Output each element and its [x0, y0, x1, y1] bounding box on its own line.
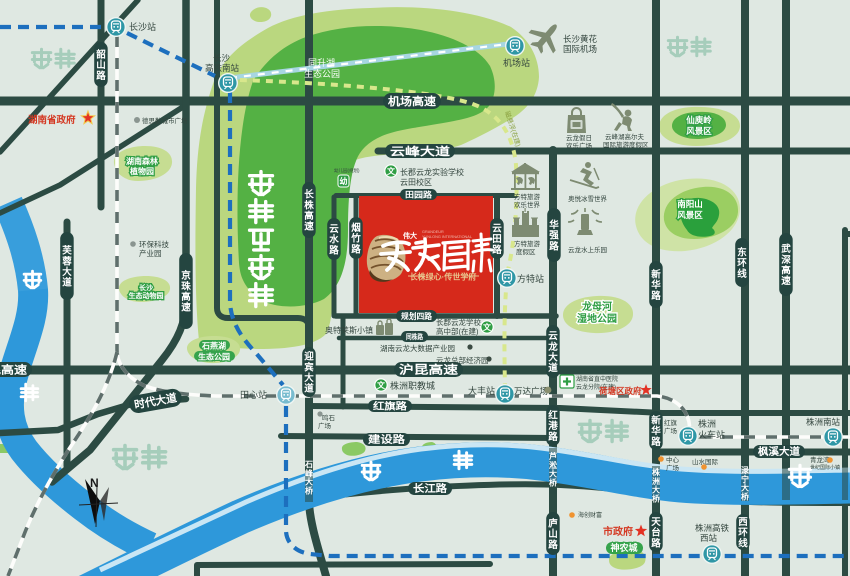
svg-text:迎: 迎	[304, 351, 314, 363]
svg-text:生态公园: 生态公园	[198, 352, 230, 362]
svg-text:生态公园: 生态公园	[304, 68, 340, 79]
svg-text:路: 路	[492, 244, 502, 256]
svg-text:高铁南站: 高铁南站	[205, 63, 240, 73]
svg-text:道: 道	[304, 383, 314, 395]
svg-text:枫溪大道: 枫溪大道	[758, 445, 800, 458]
svg-text:文: 文	[483, 322, 492, 332]
svg-text:路: 路	[651, 290, 661, 302]
svg-text:火车站: 火车站	[698, 429, 725, 440]
svg-text:路: 路	[548, 431, 558, 443]
svg-text:速: 速	[304, 221, 314, 233]
svg-text:建设路: 建设路	[367, 433, 406, 446]
svg-text:云峰湖高尔夫: 云峰湖高尔夫	[605, 132, 645, 141]
svg-text:高: 高	[304, 210, 314, 222]
svg-text:大: 大	[304, 372, 314, 384]
svg-text:大: 大	[741, 483, 749, 493]
svg-text:峰: 峰	[305, 468, 313, 478]
svg-text:珠: 珠	[181, 280, 191, 292]
svg-text:幼: 幼	[340, 176, 348, 186]
svg-text:长株绿心·传世学府: 长株绿心·传世学府	[410, 272, 477, 282]
svg-text:龙母河: 龙母河	[581, 300, 612, 313]
svg-text:广场: 广场	[664, 426, 678, 435]
svg-text:鸣石: 鸣石	[322, 413, 336, 422]
svg-text:YUNLONG INTERNATIONAL: YUNLONG INTERNATIONAL	[422, 235, 472, 239]
svg-text:生态动物园: 生态动物园	[129, 291, 164, 300]
svg-text:线: 线	[738, 537, 748, 549]
svg-text:路: 路	[351, 243, 361, 255]
svg-text:大: 大	[548, 352, 558, 364]
svg-text:台: 台	[651, 527, 661, 539]
svg-text:海创财富: 海创财富	[578, 511, 602, 519]
svg-text:文: 文	[377, 380, 386, 390]
svg-text:蓉: 蓉	[61, 255, 72, 267]
svg-text:风景区: 风景区	[686, 126, 712, 136]
svg-text:桥: 桥	[652, 493, 661, 503]
svg-text:云龙假日: 云龙假日	[566, 133, 592, 142]
svg-text:沪昆高速: 沪昆高速	[0, 363, 27, 377]
svg-text:湖南省政府: 湖南省政府	[28, 114, 76, 126]
svg-text:广场: 广场	[666, 463, 680, 472]
svg-text:方特站: 方特站	[517, 273, 544, 284]
svg-text:高中部(在建): 高中部(在建)	[436, 326, 479, 336]
svg-text:韶: 韶	[96, 49, 106, 61]
svg-text:神农城: 神农城	[610, 542, 637, 553]
svg-text:万达广场: 万达广场	[514, 386, 548, 396]
svg-text:田: 田	[492, 234, 502, 245]
svg-text:湿地公园: 湿地公园	[577, 312, 617, 325]
svg-text:株: 株	[652, 467, 661, 477]
svg-text:环: 环	[738, 528, 748, 539]
svg-text:德思勤城市广场: 德思勤城市广场	[142, 116, 188, 125]
svg-text:田园路: 田园路	[405, 189, 433, 199]
svg-text:庐: 庐	[548, 518, 558, 530]
svg-text:宁: 宁	[741, 474, 749, 484]
svg-text:世纪国际小镇: 世纪国际小镇	[810, 464, 840, 471]
svg-text:植物园: 植物园	[129, 166, 154, 176]
svg-text:欢乐世界: 欢乐世界	[514, 200, 541, 209]
svg-text:株洲高铁: 株洲高铁	[695, 523, 730, 533]
svg-text:国际机场: 国际机场	[563, 44, 597, 54]
svg-text:红旗路: 红旗路	[373, 400, 408, 412]
svg-text:规划四路: 规划四路	[401, 311, 433, 321]
svg-text:大丰站: 大丰站	[468, 385, 495, 396]
svg-text:路: 路	[549, 240, 559, 252]
svg-text:度假区: 度假区	[516, 247, 536, 256]
svg-text:路: 路	[651, 436, 661, 448]
svg-text:云龙总部经济园: 云龙总部经济园	[436, 355, 489, 365]
svg-text:京: 京	[181, 270, 191, 282]
svg-text:奥悦冰雪世界: 奥悦冰雪世界	[568, 194, 608, 203]
svg-text:长郡云龙实验学校: 长郡云龙实验学校	[400, 167, 464, 177]
svg-text:桥: 桥	[741, 491, 750, 501]
svg-text:长沙: 长沙	[139, 283, 153, 292]
svg-text:红: 红	[548, 409, 558, 421]
svg-text:淞: 淞	[549, 460, 557, 470]
svg-text:武: 武	[781, 243, 791, 255]
svg-text:华: 华	[651, 279, 661, 291]
svg-text:长: 长	[304, 189, 314, 201]
svg-text:株洲南站: 株洲南站	[806, 417, 841, 427]
svg-text:芦: 芦	[549, 451, 557, 461]
svg-text:南阳山: 南阳山	[677, 199, 703, 209]
svg-text:长郡云龙学校: 长郡云龙学校	[436, 317, 481, 327]
svg-text:同株路: 同株路	[406, 332, 424, 341]
svg-text:国际旅游度假区: 国际旅游度假区	[603, 140, 649, 149]
svg-text:云龙水上乐园: 云龙水上乐园	[568, 245, 607, 254]
svg-text:中心: 中心	[666, 455, 680, 464]
svg-text:芙: 芙	[61, 245, 72, 257]
svg-text:高: 高	[781, 265, 791, 277]
svg-text:道: 道	[62, 277, 72, 289]
svg-text:红旗: 红旗	[664, 418, 678, 427]
svg-text:西站: 西站	[700, 533, 718, 543]
svg-text:湖南省直中医院: 湖南省直中医院	[576, 375, 618, 383]
svg-text:文: 文	[387, 166, 396, 176]
svg-text:大: 大	[549, 469, 557, 479]
svg-text:龙: 龙	[547, 341, 558, 353]
svg-text:线: 线	[737, 268, 747, 280]
svg-text:西: 西	[738, 517, 748, 528]
svg-text:洲: 洲	[652, 477, 660, 486]
svg-text:山: 山	[548, 528, 558, 540]
svg-text:云: 云	[329, 224, 339, 235]
svg-text:深: 深	[781, 254, 791, 266]
svg-text:仙庾岭: 仙庾岭	[686, 115, 712, 125]
svg-text:大: 大	[652, 485, 660, 495]
svg-text:天: 天	[651, 517, 661, 528]
svg-text:同升湖: 同升湖	[308, 58, 335, 68]
svg-text:奥特莱斯小镇: 奥特莱斯小镇	[325, 325, 373, 335]
svg-text:路: 路	[329, 244, 339, 256]
svg-text:华: 华	[549, 219, 559, 231]
svg-text:GRANDEUR: GRANDEUR	[422, 230, 444, 234]
svg-text:华: 华	[651, 425, 661, 437]
svg-text:云田校区: 云田校区	[400, 177, 432, 187]
svg-text:竹: 竹	[350, 233, 361, 245]
svg-text:长沙: 长沙	[213, 53, 231, 63]
svg-text:东: 东	[737, 246, 747, 258]
svg-text:云峰大道: 云峰大道	[390, 144, 450, 158]
svg-text:桥: 桥	[549, 477, 558, 487]
svg-text:路: 路	[548, 539, 558, 551]
svg-text:大: 大	[62, 266, 72, 278]
svg-text:环保科技: 环保科技	[139, 239, 169, 249]
svg-text:宾: 宾	[304, 361, 314, 373]
svg-text:机场站: 机场站	[503, 57, 530, 68]
svg-text:方特旅游: 方特旅游	[514, 239, 541, 248]
svg-text:新: 新	[651, 268, 661, 280]
svg-text:长江路: 长江路	[413, 482, 448, 495]
svg-text:幼儿园(规划): 幼儿园(规划)	[334, 167, 360, 174]
svg-text:长沙站: 长沙站	[129, 21, 156, 32]
svg-text:田心站: 田心站	[240, 389, 267, 400]
svg-text:路: 路	[651, 537, 661, 549]
svg-text:山: 山	[96, 59, 106, 71]
svg-text:云: 云	[548, 331, 558, 342]
svg-text:速: 速	[781, 275, 791, 287]
svg-text:大: 大	[305, 477, 313, 487]
svg-text:石燕湖: 石燕湖	[201, 341, 226, 351]
svg-text:风景区: 风景区	[677, 210, 703, 220]
svg-text:湖南云龙大数据产业园: 湖南云龙大数据产业园	[380, 343, 455, 353]
svg-text:荷塘区政府: 荷塘区政府	[598, 386, 642, 396]
svg-text:环: 环	[737, 258, 747, 269]
svg-text:石: 石	[304, 460, 313, 469]
svg-text:湖南森林: 湖南森林	[126, 156, 158, 166]
svg-text:烟: 烟	[351, 222, 361, 234]
svg-text:株洲: 株洲	[698, 418, 716, 429]
svg-text:港: 港	[548, 420, 558, 432]
svg-text:株: 株	[304, 199, 314, 211]
svg-text:株洲职教城: 株洲职教城	[390, 380, 435, 391]
svg-text:广场: 广场	[318, 421, 332, 430]
svg-text:伟大: 伟大	[403, 231, 417, 240]
svg-text:水: 水	[329, 234, 339, 246]
svg-text:方特旅游: 方特旅游	[514, 192, 541, 201]
svg-text:长沙黄花: 长沙黄花	[563, 34, 598, 44]
svg-text:新: 新	[651, 414, 661, 426]
svg-text:欢乐广场: 欢乐广场	[566, 141, 593, 150]
svg-text:速: 速	[181, 302, 191, 314]
svg-text:道: 道	[548, 362, 558, 374]
svg-text:市政府: 市政府	[603, 525, 633, 538]
svg-text:路: 路	[96, 70, 106, 82]
svg-text:产业园: 产业园	[139, 248, 162, 258]
svg-text:云: 云	[492, 223, 502, 234]
svg-text:青龙湾: 青龙湾	[810, 455, 830, 464]
svg-text:机场高速: 机场高速	[388, 94, 436, 108]
svg-text:强: 强	[549, 231, 559, 242]
svg-text:桥: 桥	[305, 485, 314, 495]
svg-text:渌: 渌	[741, 465, 750, 475]
svg-text:高: 高	[181, 291, 191, 303]
